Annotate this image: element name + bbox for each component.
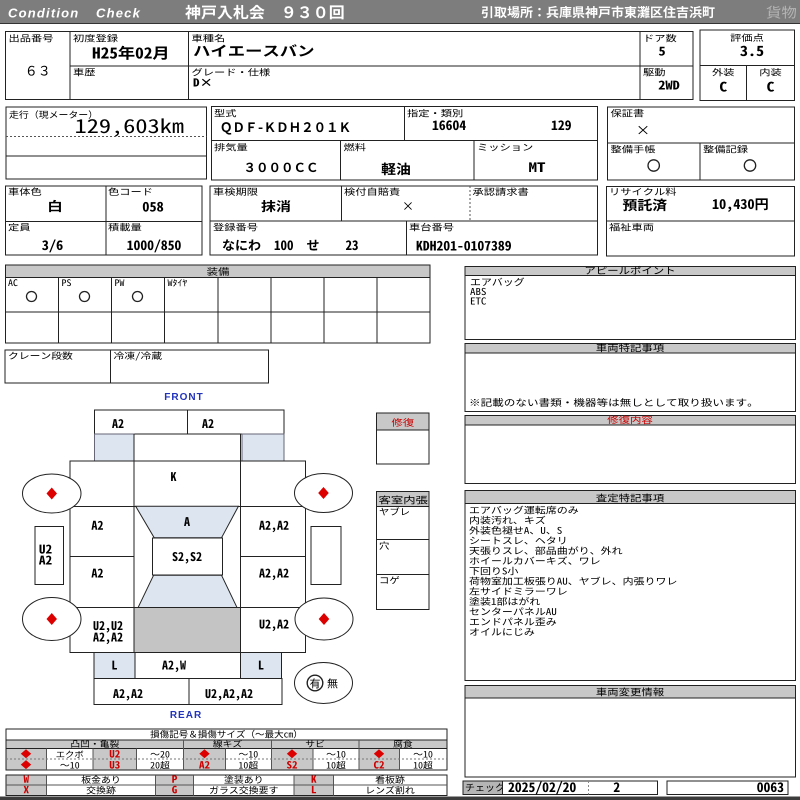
svg-text:FRONT: FRONT bbox=[164, 392, 203, 403]
svg-text:Check: Check bbox=[96, 6, 141, 21]
svg-text:REAR: REAR bbox=[170, 710, 202, 721]
svg-text:Condition: Condition bbox=[8, 6, 79, 21]
